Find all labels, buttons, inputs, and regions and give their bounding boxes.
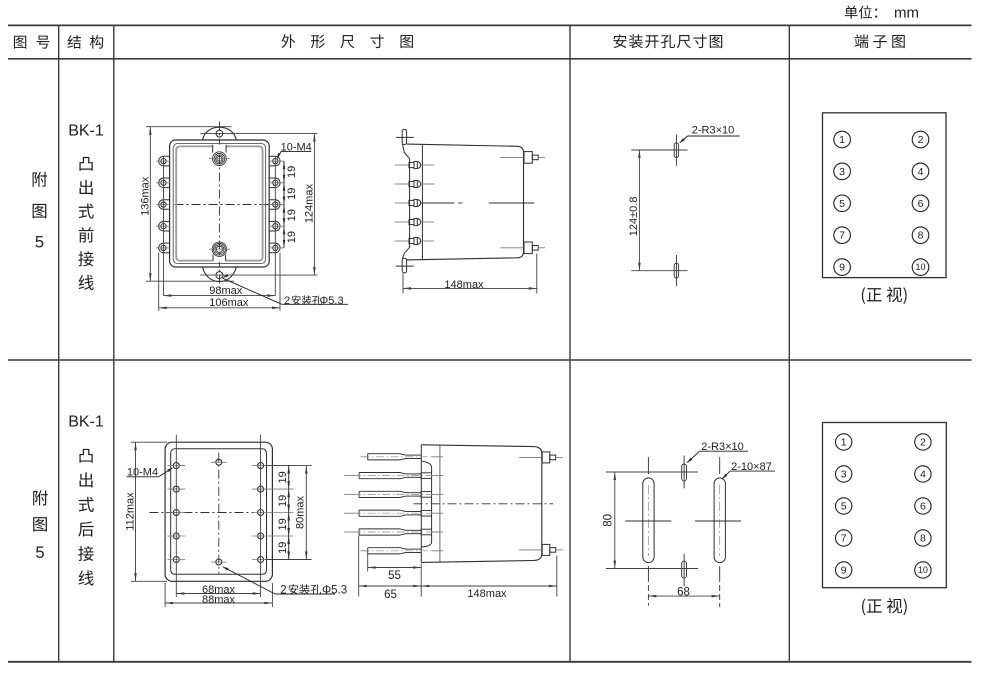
svg-text:80max: 80max — [294, 495, 306, 529]
svg-text:10: 10 — [915, 262, 925, 272]
svg-text:68: 68 — [677, 586, 690, 598]
svg-text:136max: 136max — [140, 176, 152, 216]
svg-text:148max: 148max — [444, 279, 484, 291]
svg-text:4: 4 — [918, 166, 924, 178]
svg-text:Φ5.3: Φ5.3 — [320, 295, 344, 307]
svg-text:3: 3 — [839, 166, 845, 178]
svg-text:19: 19 — [277, 518, 289, 530]
svg-text:2: 2 — [920, 437, 926, 449]
svg-text:124±0.8: 124±0.8 — [628, 197, 640, 237]
svg-text:19: 19 — [286, 231, 298, 243]
svg-text:106max: 106max — [209, 297, 249, 309]
svg-text:1: 1 — [839, 134, 845, 146]
svg-text:1: 1 — [841, 437, 847, 449]
svg-text:124max: 124max — [304, 184, 316, 224]
svg-text:9: 9 — [841, 565, 847, 577]
svg-text:7: 7 — [839, 230, 845, 242]
svg-text:19: 19 — [286, 209, 298, 221]
svg-text:5: 5 — [35, 233, 44, 251]
svg-text:2: 2 — [280, 584, 286, 596]
svg-text:55: 55 — [388, 570, 401, 582]
svg-text:3: 3 — [841, 469, 847, 481]
svg-text:6: 6 — [918, 198, 924, 210]
svg-text:19: 19 — [277, 542, 289, 554]
svg-text:80: 80 — [603, 514, 615, 527]
svg-text:148max: 148max — [467, 588, 507, 600]
svg-text:7: 7 — [841, 533, 847, 545]
svg-text:5: 5 — [841, 501, 847, 513]
svg-text:19: 19 — [277, 495, 289, 507]
svg-text:4: 4 — [920, 469, 926, 481]
svg-text:9: 9 — [839, 262, 845, 274]
svg-text:BK-1: BK-1 — [68, 413, 104, 430]
svg-text:8: 8 — [920, 533, 926, 545]
svg-text:19: 19 — [277, 471, 289, 483]
svg-text:65: 65 — [384, 589, 397, 601]
svg-text:19: 19 — [286, 188, 298, 200]
svg-text:2-R3×10: 2-R3×10 — [692, 124, 735, 136]
svg-text:2: 2 — [918, 134, 924, 146]
svg-text:Φ5.3: Φ5.3 — [322, 584, 347, 596]
svg-text:98max: 98max — [209, 285, 243, 297]
svg-text:10: 10 — [918, 565, 928, 575]
svg-text:mm: mm — [894, 4, 919, 21]
svg-text:19: 19 — [286, 166, 298, 178]
svg-text:5: 5 — [839, 198, 845, 210]
svg-text:2: 2 — [284, 295, 290, 307]
svg-text:8: 8 — [918, 230, 924, 242]
svg-text:88max: 88max — [202, 594, 236, 606]
svg-text:5: 5 — [35, 544, 44, 562]
svg-text:112max: 112max — [124, 492, 136, 531]
svg-text:6: 6 — [920, 501, 926, 513]
svg-text:BK-1: BK-1 — [68, 123, 104, 140]
